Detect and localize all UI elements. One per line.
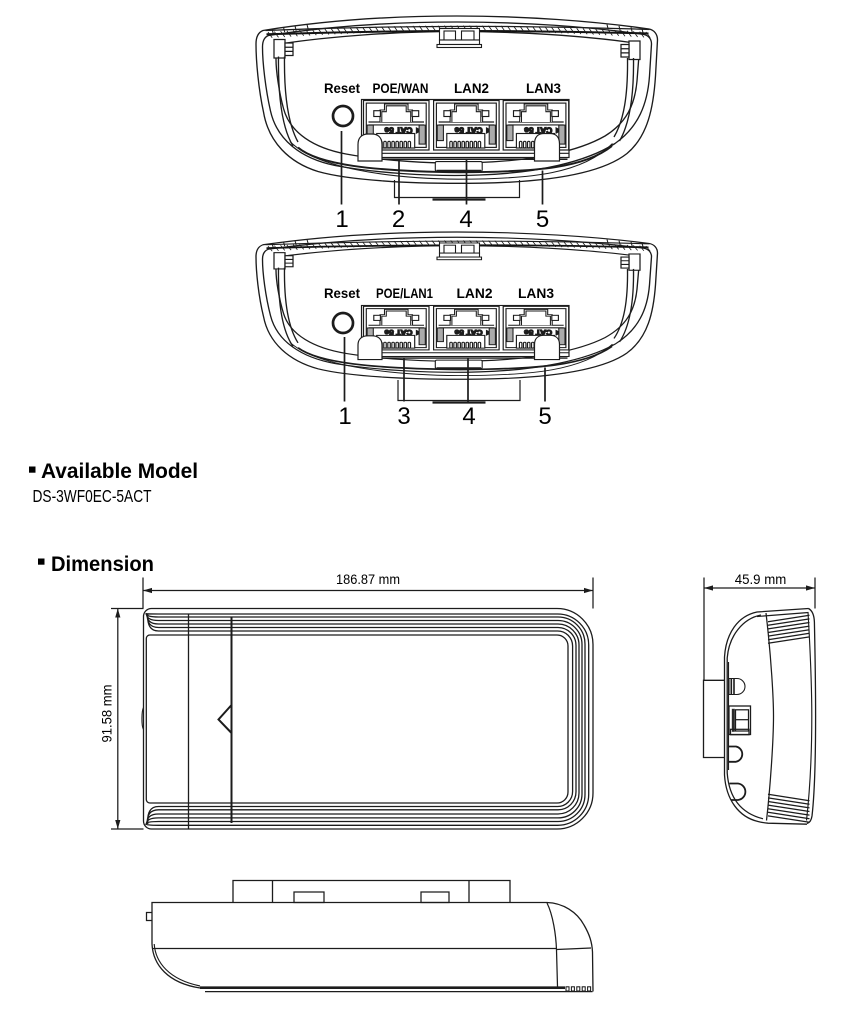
svg-text:1: 1 <box>338 403 351 430</box>
svg-text:POE/WAN: POE/WAN <box>373 81 429 96</box>
svg-text:5: 5 <box>538 403 551 430</box>
svg-text:Dimension: Dimension <box>51 553 154 576</box>
svg-text:Reset: Reset <box>324 81 360 96</box>
svg-text:5: 5 <box>536 206 549 233</box>
svg-text:LAN2: LAN2 <box>454 81 489 96</box>
svg-text:3: 3 <box>397 403 410 430</box>
svg-text:Available Model: Available Model <box>41 460 198 483</box>
svg-text:DS-3WF0EC-5ACT: DS-3WF0EC-5ACT <box>33 486 152 506</box>
svg-text:Reset: Reset <box>324 286 360 301</box>
svg-text:4: 4 <box>462 403 475 430</box>
svg-text:4: 4 <box>459 206 472 233</box>
svg-text:LAN3: LAN3 <box>518 286 554 301</box>
svg-text:1: 1 <box>335 206 348 233</box>
svg-text:2: 2 <box>392 206 405 233</box>
svg-text:POE/LAN1: POE/LAN1 <box>376 286 433 301</box>
svg-text:45.9 mm: 45.9 mm <box>735 571 787 587</box>
svg-text:LAN3: LAN3 <box>526 81 561 96</box>
svg-text:91.58 mm: 91.58 mm <box>99 685 115 743</box>
svg-text:186.87 mm: 186.87 mm <box>336 571 400 587</box>
svg-text:LAN2: LAN2 <box>457 286 493 301</box>
